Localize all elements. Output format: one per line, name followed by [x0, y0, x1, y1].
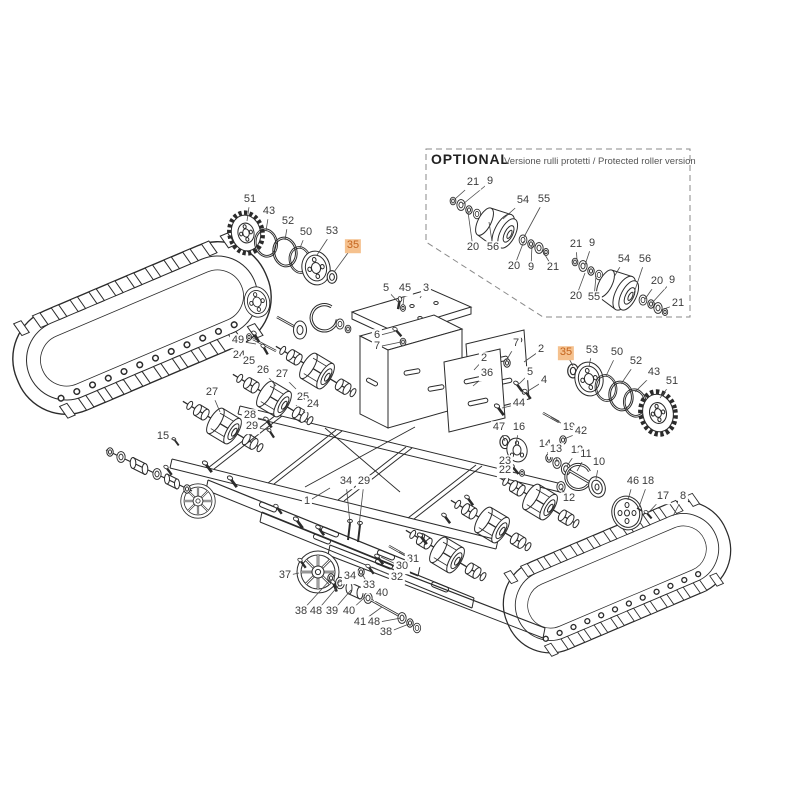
- part-label-53: 53: [324, 225, 340, 239]
- part-label-43: 43: [646, 366, 662, 380]
- part-label-9: 9: [485, 175, 495, 189]
- part-label-21: 21: [568, 238, 584, 252]
- part-label-54: 54: [616, 253, 632, 267]
- part-labels-layer: 5143525053352195455205620921219545620920…: [0, 0, 800, 800]
- part-label-21: 21: [465, 176, 481, 190]
- part-label-5: 5: [525, 366, 535, 380]
- part-label-13: 13: [548, 443, 564, 457]
- part-label-47: 47: [491, 421, 507, 435]
- part-label-20: 20: [465, 241, 481, 255]
- part-label-51: 51: [664, 375, 680, 389]
- part-label-1: 1: [302, 495, 312, 509]
- part-label-34: 34: [338, 475, 354, 489]
- part-label-50: 50: [298, 226, 314, 240]
- part-label-52: 52: [628, 355, 644, 369]
- part-label-50: 50: [609, 346, 625, 360]
- part-label-49: 49: [230, 334, 246, 348]
- part-label-26: 26: [255, 364, 271, 378]
- part-label-35: 35: [345, 239, 361, 253]
- part-label-8: 8: [678, 490, 688, 504]
- part-label-40: 40: [374, 587, 390, 601]
- part-label-3: 3: [421, 282, 431, 296]
- part-label-27: 27: [274, 368, 290, 382]
- part-label-43: 43: [261, 205, 277, 219]
- part-label-12: 12: [561, 492, 577, 506]
- part-label-55: 55: [586, 291, 602, 305]
- part-label-21: 21: [670, 297, 686, 311]
- part-label-10: 10: [591, 456, 607, 470]
- part-label-5: 5: [381, 282, 391, 296]
- part-label-54: 54: [515, 194, 531, 208]
- part-label-32: 32: [389, 571, 405, 585]
- part-label-18: 18: [640, 475, 656, 489]
- part-label-20: 20: [506, 260, 522, 274]
- part-label-7: 7: [511, 337, 521, 351]
- part-label-22: 22: [497, 464, 513, 478]
- part-label-36: 36: [479, 367, 495, 381]
- part-label-4: 4: [539, 374, 549, 388]
- part-label-17: 17: [655, 490, 671, 504]
- part-label-9: 9: [587, 237, 597, 251]
- optional-panel-subtitle: Versione rulli protetti / Protected roll…: [504, 156, 696, 167]
- part-label-2: 2: [536, 343, 546, 357]
- part-label-34: 34: [342, 570, 358, 584]
- part-label-38: 38: [378, 626, 394, 640]
- part-label-15: 15: [155, 430, 171, 444]
- part-label-37: 37: [277, 569, 293, 583]
- part-label-29: 29: [244, 420, 260, 434]
- part-label-27: 27: [204, 386, 220, 400]
- exploded-parts-diagram: 5143525053352195455205620921219545620920…: [0, 0, 800, 800]
- part-label-42: 42: [573, 425, 589, 439]
- part-label-52: 52: [280, 215, 296, 229]
- part-label-35: 35: [558, 346, 574, 360]
- part-label-9: 9: [526, 261, 536, 275]
- part-label-39: 39: [324, 605, 340, 619]
- part-label-56: 56: [485, 241, 501, 255]
- part-label-38: 38: [293, 605, 309, 619]
- part-label-51: 51: [242, 193, 258, 207]
- part-label-29: 29: [356, 475, 372, 489]
- part-label-21: 21: [545, 261, 561, 275]
- part-label-2: 2: [479, 352, 489, 366]
- part-label-16: 16: [511, 421, 527, 435]
- part-label-9: 9: [667, 274, 677, 288]
- part-label-55: 55: [536, 193, 552, 207]
- part-label-44: 44: [511, 397, 527, 411]
- part-label-56: 56: [637, 253, 653, 267]
- part-label-46: 46: [625, 475, 641, 489]
- part-label-20: 20: [568, 290, 584, 304]
- part-label-24: 24: [305, 398, 321, 412]
- part-label-53: 53: [584, 344, 600, 358]
- part-label-7: 7: [372, 340, 382, 354]
- optional-panel-title: OPTIONAL: [431, 151, 510, 167]
- part-label-45: 45: [397, 282, 413, 296]
- part-label-48: 48: [308, 605, 324, 619]
- part-label-20: 20: [649, 275, 665, 289]
